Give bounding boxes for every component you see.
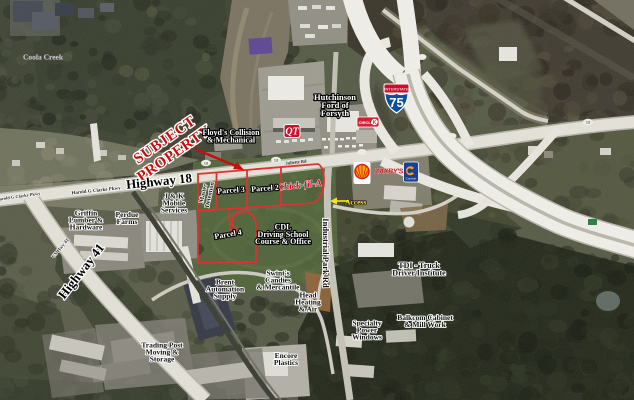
svg-text:Services: Services bbox=[161, 206, 187, 215]
svg-text:Plastics: Plastics bbox=[274, 358, 298, 367]
svg-text:Hardware: Hardware bbox=[70, 223, 103, 232]
svg-text:Course & Office: Course & Office bbox=[255, 237, 311, 246]
svg-text:INTERSTATE: INTERSTATE bbox=[384, 87, 409, 92]
svg-text:Forsyth: Forsyth bbox=[321, 108, 350, 118]
svg-text:& Mechanical: & Mechanical bbox=[207, 136, 256, 145]
svg-text:Access: Access bbox=[345, 198, 366, 207]
svg-text:Parcel 3: Parcel 3 bbox=[217, 185, 245, 196]
svg-text:Supply: Supply bbox=[214, 292, 237, 301]
svg-text:& Mercantile: & Mercantile bbox=[257, 283, 301, 292]
svg-text:ZAXBY'S: ZAXBY'S bbox=[374, 169, 404, 176]
svg-text:Windows: Windows bbox=[352, 333, 382, 342]
svg-text:Farms: Farms bbox=[117, 217, 138, 226]
svg-text:& Air: & Air bbox=[299, 305, 318, 314]
svg-text:QT: QT bbox=[285, 127, 299, 138]
svg-text:& Mill Work: & Mill Work bbox=[404, 320, 446, 329]
svg-text:Parcel 2: Parcel 2 bbox=[251, 183, 279, 194]
svg-text:75: 75 bbox=[389, 95, 403, 110]
svg-text:Driver Institute: Driver Institute bbox=[392, 269, 446, 278]
svg-text:Storage: Storage bbox=[150, 355, 175, 364]
svg-text:Industrial Park Rd: Industrial Park Rd bbox=[321, 218, 331, 288]
svg-text:Comfort: Comfort bbox=[406, 177, 417, 181]
svg-text:Coola Creek: Coola Creek bbox=[23, 53, 64, 62]
svg-text:K: K bbox=[373, 120, 377, 126]
